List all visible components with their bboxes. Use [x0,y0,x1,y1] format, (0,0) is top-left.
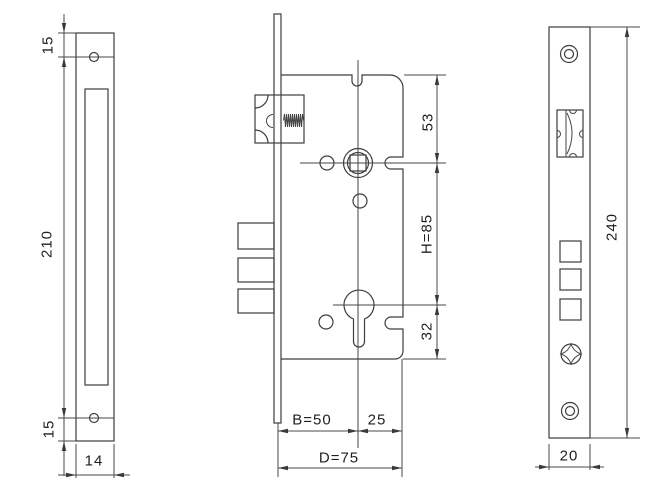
view-faceplate-side [58,33,114,441]
lock-case-outline [281,75,403,359]
dimensions: 15 210 15 14 53 H=85 32 B=50 25 D=75 240… [39,14,641,478]
dim-lines-left-view [58,14,130,478]
countersunk-screw-hole-top [561,46,578,63]
latch-head-arc [267,115,274,128]
dim-label-backset: B=50 [292,412,331,429]
latch-cutout [557,110,583,157]
dim-label-plate-length-front: 240 [604,213,621,241]
dim-label-case-depth: D=75 [319,450,359,467]
latch-bevel-curve [567,113,572,154]
latch-spring [284,114,304,127]
dim-label-backset-to-rear: 25 [368,412,387,429]
faceplate-front-outline [549,27,590,438]
latch-corner-arcs [255,95,268,143]
dim-arrowheads [62,23,629,477]
hole-outer [562,403,579,420]
dim-label-spindle-to-cylinder: H=85 [419,214,436,254]
euro-cylinder-hole [344,290,374,347]
forend-plate [274,14,281,423]
fixing-hole-cylinder [319,315,333,329]
cross-screw-circle [561,344,581,364]
deadbolt-bar-3 [238,289,274,313]
deadbolt-cutout-2 [560,269,581,290]
deadbolt-bar-2 [238,258,274,282]
deadbolt-bar-1 [238,223,274,249]
deadbolt [238,223,274,313]
latch-cutout-notches [557,110,583,157]
view-lock-body [238,14,446,448]
fixing-hole-middle [353,194,367,208]
dim-label-top-to-spindle: 53 [420,113,437,132]
hole-centerlines [58,57,114,418]
dim-label-bottom-hole-offset: 15 [41,420,58,439]
latch-bolt [255,95,304,143]
hole-inner [565,50,574,59]
hole-inner [566,407,575,416]
countersunk-screw-hole-bottom [562,403,579,420]
dim-label-body-length: 210 [39,230,56,258]
view-faceplate-front [549,27,590,438]
dim-label-cylinder-to-bottom: 32 [419,322,436,341]
cross-screw [561,344,581,364]
deadbolt-cutouts [560,241,581,320]
dim-label-plate-width-front: 20 [560,448,579,465]
lock-technical-drawing: 15 210 15 14 53 H=85 32 B=50 25 D=75 240… [0,0,670,492]
deadbolt-cutout-3 [560,299,581,320]
dim-label-top-hole-offset: 15 [40,36,57,55]
hole-outer [561,46,578,63]
deadbolt-cutout-1 [560,241,581,262]
dim-lines-right-view [535,27,640,470]
faceplate-recess [85,89,108,385]
drawing-svg: 15 210 15 14 53 H=85 32 B=50 25 D=75 240… [0,0,670,492]
dim-label-plate-width-side: 14 [85,453,104,470]
